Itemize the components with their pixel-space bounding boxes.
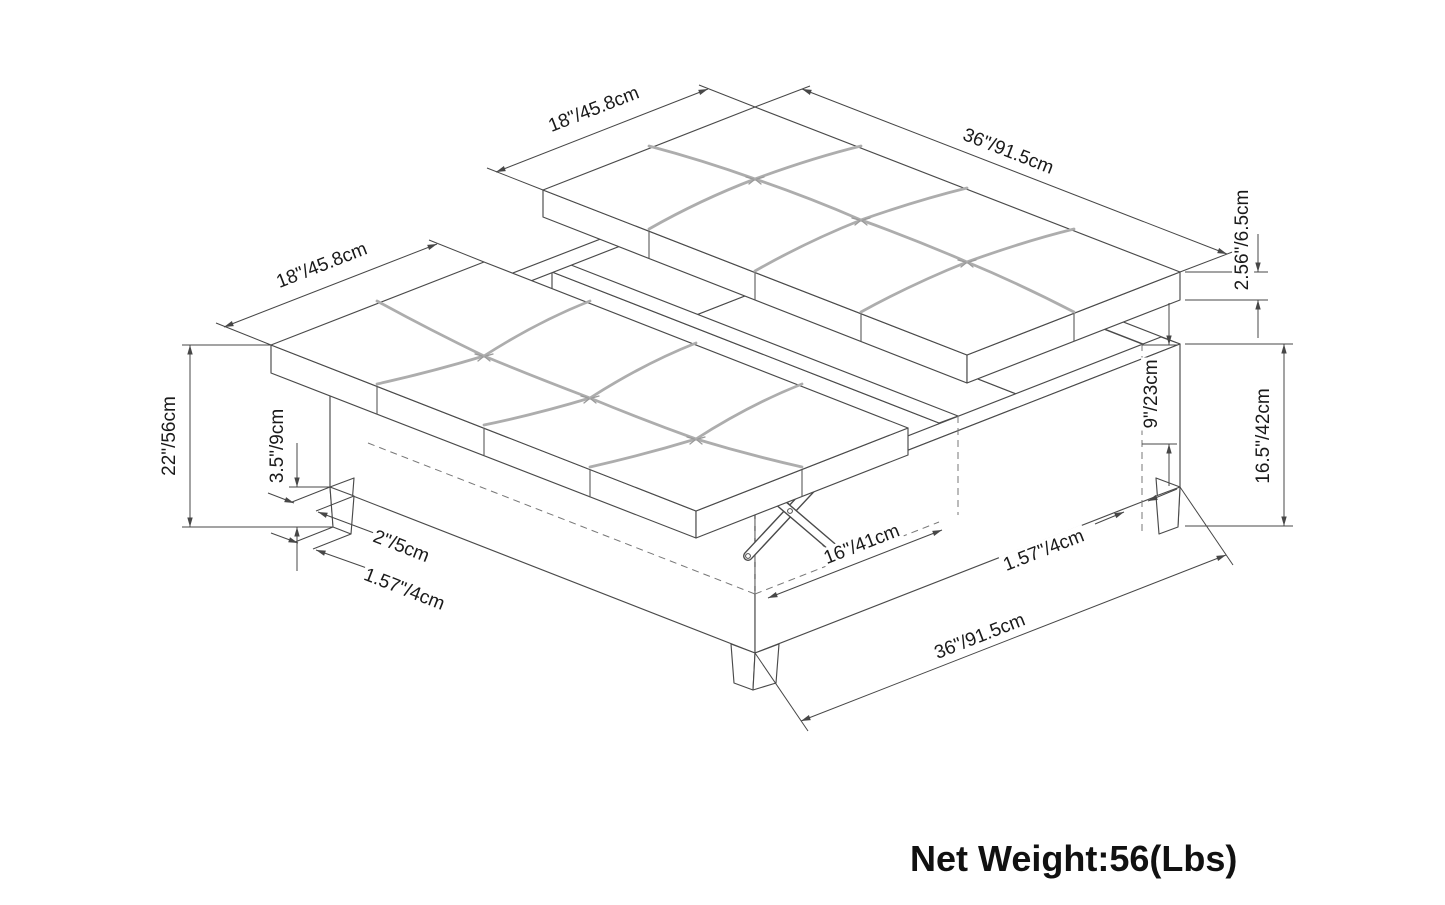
dim-label-overall-height: 22"/56cm: [159, 394, 181, 478]
ottoman-line-drawing: [0, 0, 1445, 905]
ottoman-dimension-diagram: 18"/45.8cm 18"/45.8cm 36"/91.5cm 2.56"/6…: [0, 0, 1445, 905]
dim-label-leg-height: 3.5"/9cm: [267, 407, 289, 485]
dim-label-cushion-thickness: 2.56"/6.5cm: [1232, 188, 1254, 293]
net-weight-label: Net Weight:56(Lbs): [910, 838, 1237, 880]
dim-label-interior-depth: 9"/23cm: [1141, 357, 1163, 430]
dim-label-base-height: 16.5"/42cm: [1253, 386, 1275, 485]
